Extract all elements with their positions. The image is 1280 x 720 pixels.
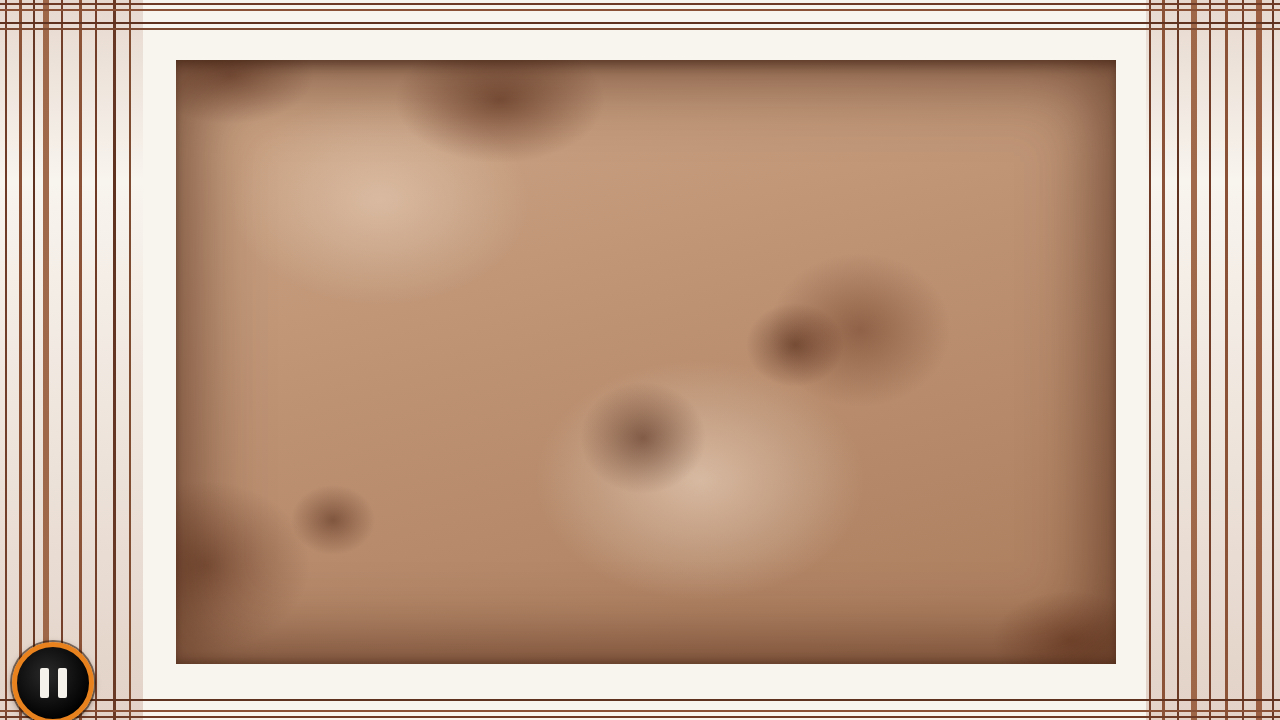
pause-icon [40,668,67,698]
maze-board [0,0,1280,720]
pause-button[interactable] [12,642,94,720]
